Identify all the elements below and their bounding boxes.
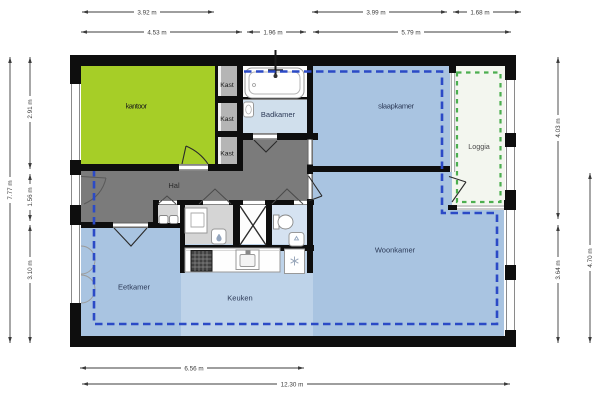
svg-text:Loggia: Loggia (468, 142, 490, 151)
svg-text:12.30 m: 12.30 m (281, 382, 304, 389)
svg-text:2.91 m: 2.91 m (27, 99, 34, 118)
svg-text:3.99 m: 3.99 m (366, 10, 385, 17)
svg-text:1.56 m: 1.56 m (27, 187, 34, 206)
svg-text:1.96 m: 1.96 m (263, 30, 282, 37)
svg-text:Kast: Kast (220, 116, 234, 123)
svg-text:Kast: Kast (220, 82, 234, 89)
svg-text:3.10 m: 3.10 m (27, 260, 34, 279)
svg-text:4.70 m: 4.70 m (587, 248, 594, 267)
svg-text:7.77 m: 7.77 m (7, 180, 14, 199)
svg-text:slaapkamer: slaapkamer (378, 102, 415, 111)
svg-text:1.68 m: 1.68 m (470, 10, 489, 17)
svg-text:kantoor: kantoor (126, 102, 148, 111)
svg-text:5.79 m: 5.79 m (401, 30, 420, 37)
svg-text:4.53 m: 4.53 m (147, 30, 166, 37)
svg-text:4.03 m: 4.03 m (555, 118, 562, 137)
svg-text:Keuken: Keuken (227, 294, 252, 303)
svg-text:Woonkamer: Woonkamer (375, 246, 416, 255)
svg-text:3.64 m: 3.64 m (555, 260, 562, 279)
svg-text:Kast: Kast (220, 151, 234, 158)
svg-text:Hal: Hal (168, 181, 180, 190)
svg-text:3.92 m: 3.92 m (137, 10, 156, 17)
svg-text:Badkamer: Badkamer (261, 110, 296, 119)
svg-text:Eetkamer: Eetkamer (118, 283, 151, 292)
svg-text:6.56 m: 6.56 m (184, 366, 203, 373)
